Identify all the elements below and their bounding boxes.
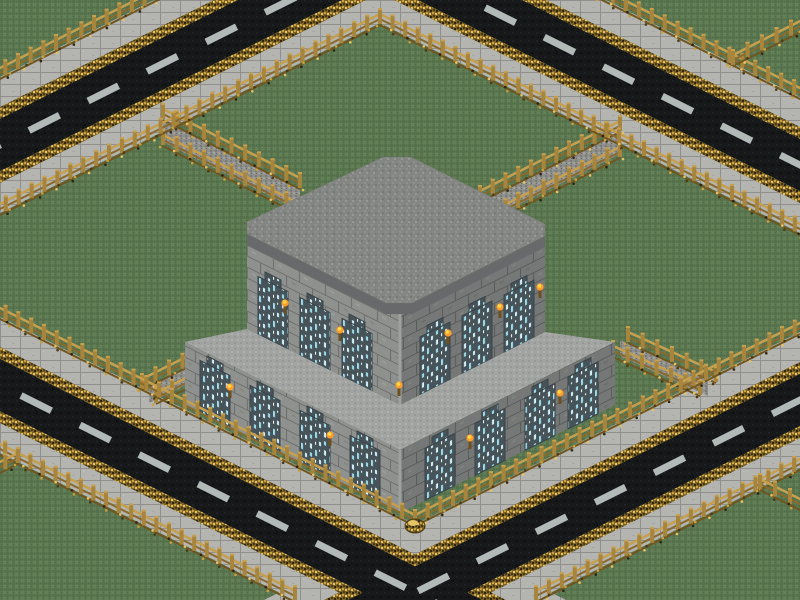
isometric-city-scene bbox=[0, 0, 800, 600]
gate-gold-mound bbox=[405, 519, 425, 533]
game-viewport[interactable] bbox=[0, 0, 800, 600]
